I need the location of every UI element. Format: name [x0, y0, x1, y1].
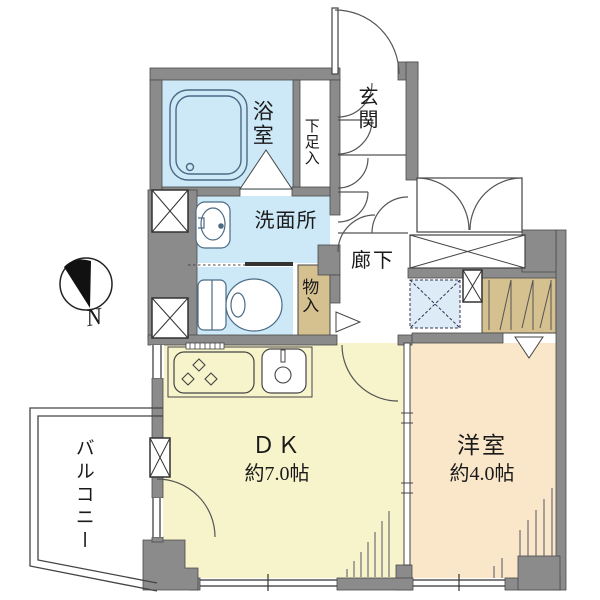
western-room-size: 約4.0帖: [430, 462, 534, 487]
trunk-closet-box: [410, 235, 525, 268]
trunk-closet-front: [417, 178, 522, 232]
shoe-cabinet-label: 下足入: [301, 118, 320, 166]
washroom-label: 洗面所: [240, 209, 332, 234]
balcony-label: バルコニー: [71, 438, 95, 553]
appliance-space-box: [410, 280, 460, 328]
dining-kitchen-size: 約7.0帖: [225, 462, 329, 487]
entrance-door-arc: [335, 10, 399, 74]
pipe-space-box: [152, 190, 188, 232]
balcony-door-window: [150, 498, 163, 537]
kitchen-window: [151, 345, 164, 378]
kitchen-sink-icon: [262, 349, 306, 393]
dining-kitchen-label: ＤＫ: [230, 432, 324, 461]
toilet-icon: [198, 279, 282, 331]
hallway-label: 廊下: [341, 249, 405, 274]
pipe-space-box: [150, 438, 170, 477]
bathroom-label: 浴室: [249, 100, 275, 148]
compass-icon: [60, 258, 112, 310]
western-room-label: 洋室: [435, 432, 529, 461]
entrance-door-leaf: [332, 8, 338, 74]
room-closet: [482, 275, 556, 333]
kitchen-counter: [168, 343, 312, 397]
pipe-space-box: [463, 270, 482, 302]
pipe-space-box: [152, 298, 188, 338]
storage-door-wedge: [336, 312, 360, 332]
floor-plan: 浴室 下足入 玄関 洗面所 物入 廊下 ＤＫ 約7.0帖 洋室 約4.0帖 バル…: [0, 0, 600, 600]
entrance-label: 玄関: [353, 86, 378, 132]
washbasin-icon: [196, 202, 230, 248]
storage-label: 物入: [298, 278, 319, 314]
